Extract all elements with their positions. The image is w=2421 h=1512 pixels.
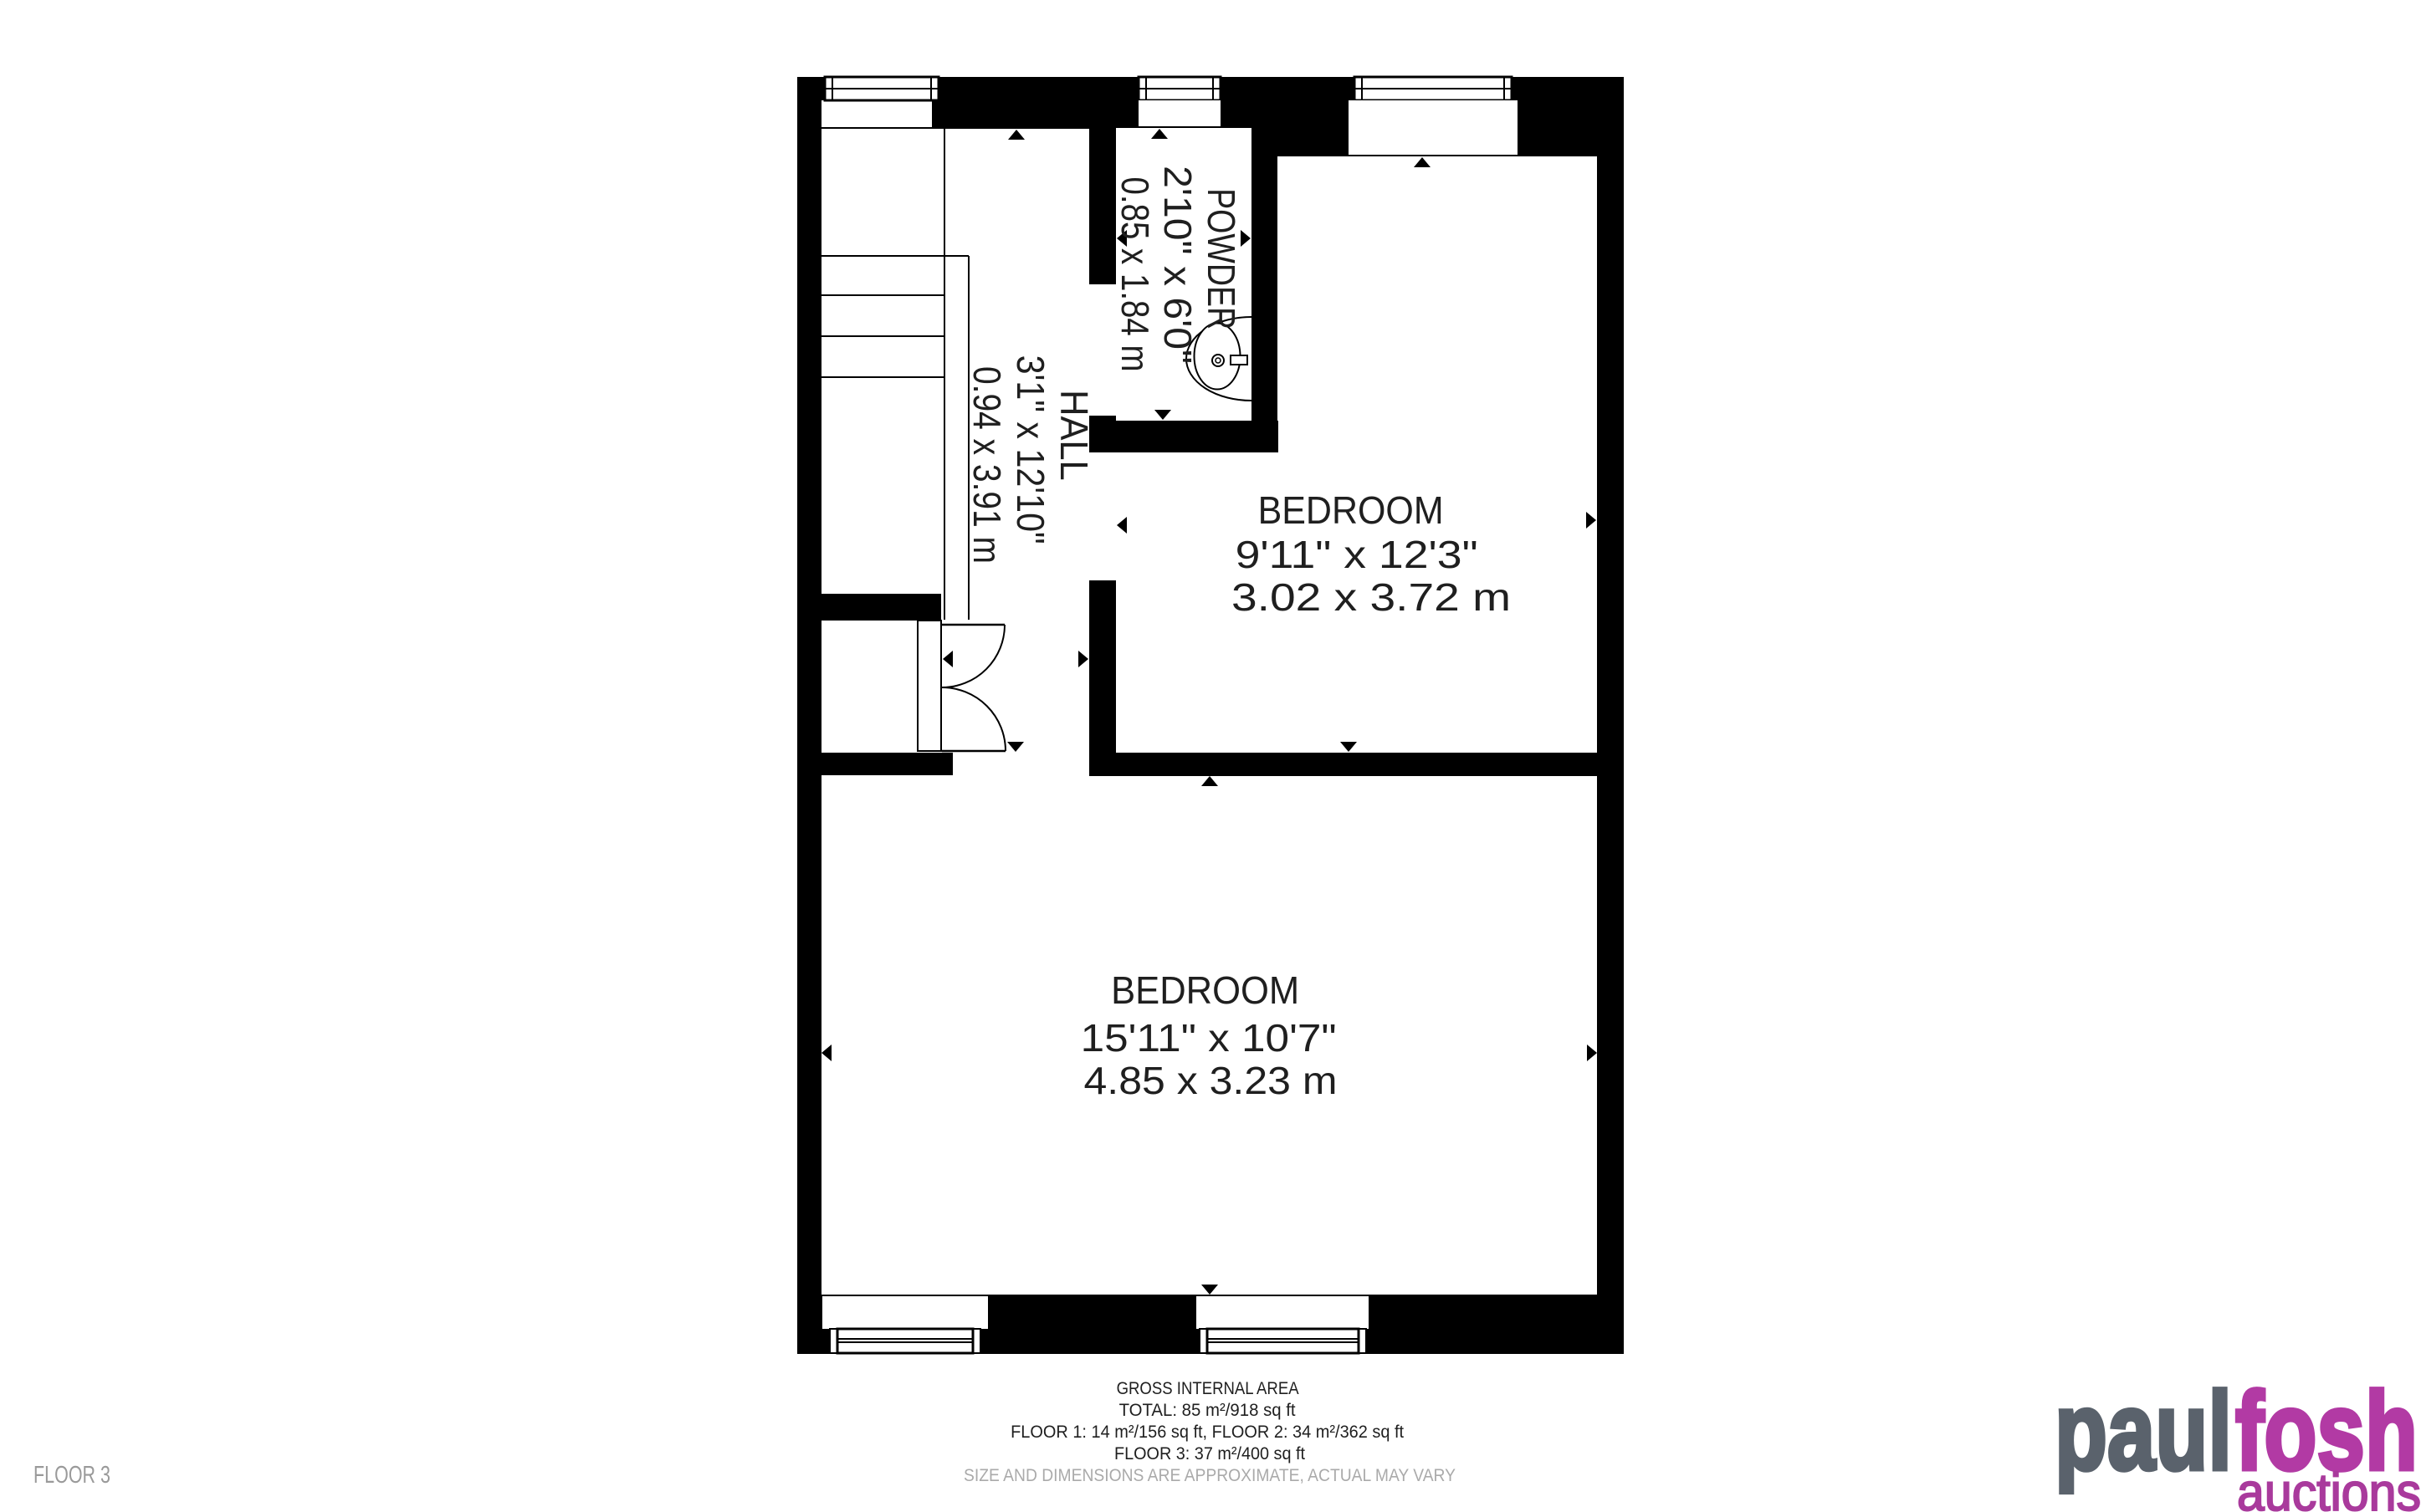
- svg-text:auctions: auctions: [2237, 1463, 2421, 1512]
- svg-text:BEDROOM 15'11" x 10'7" 4.85 x: BEDROOM 15'11" x 10'7" 4.85 x 3.23 m: [1081, 968, 1348, 1102]
- svg-text:SIZE AND DIMENSIONS ARE APPROX: SIZE AND DIMENSIONS ARE APPROXIMATE, ACT…: [964, 1466, 1456, 1485]
- svg-text:paul: paul: [2055, 1370, 2232, 1494]
- svg-text:FLOOR 3: FLOOR 3: [33, 1462, 110, 1489]
